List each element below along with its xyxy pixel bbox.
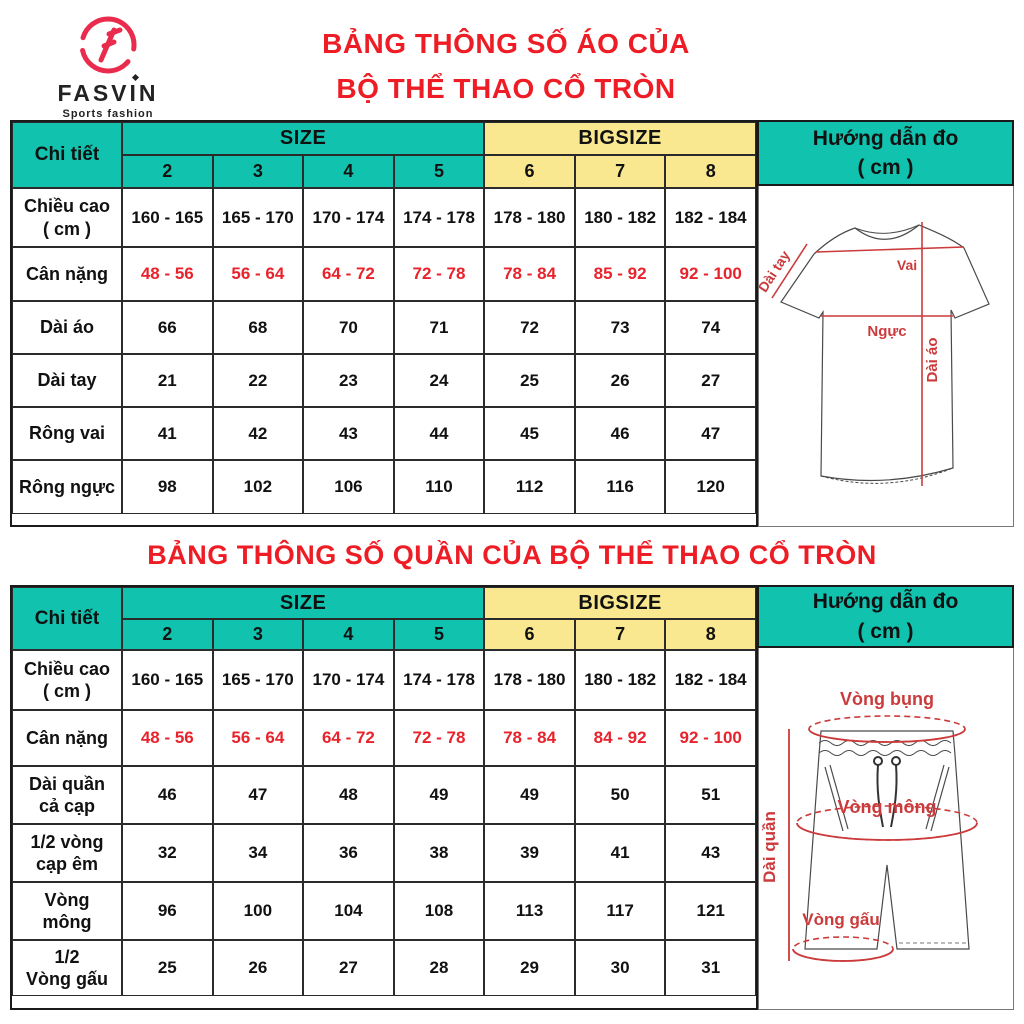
row-label-height: Chiều cao( cm ) <box>12 650 122 710</box>
table-cell: 112 <box>484 460 575 514</box>
table-cell: 41 <box>575 824 666 882</box>
table-cell: 25 <box>484 354 575 407</box>
table-cell: 73 <box>575 301 666 354</box>
table-cell: 56 - 64 <box>213 247 304 301</box>
nguc-label: Ngực <box>867 323 906 340</box>
table-cell: 42 <box>213 407 304 460</box>
shirt-measure-guide: Hướng dẫn đo ( cm ) Vai Ngực Dài áo <box>758 120 1014 527</box>
row-label-weight: Cân nặng <box>12 710 122 766</box>
table-cell: 117 <box>575 882 666 940</box>
table-cell: 108 <box>394 882 485 940</box>
table-cell: 22 <box>213 354 304 407</box>
table-cell: 178 - 180 <box>484 650 575 710</box>
pants-header-size-group: SIZE <box>122 587 484 619</box>
shirt-table-title: BẢNG THÔNG SỐ ÁO CỦA BỘ THỂ THAO CỔ TRÒN <box>0 22 1024 112</box>
bigsize-col-header: 8 <box>665 619 756 650</box>
table-cell: 38 <box>394 824 485 882</box>
table-cell: 165 - 170 <box>213 188 304 247</box>
table-cell: 24 <box>394 354 485 407</box>
shirt-diagram: Vai Ngực Dài áo Dài tay <box>758 186 1014 527</box>
table-cell: 21 <box>122 354 213 407</box>
table-cell: 160 - 165 <box>122 650 213 710</box>
table-cell: 178 - 180 <box>484 188 575 247</box>
table-cell: 28 <box>394 940 485 996</box>
table-cell: 56 - 64 <box>213 710 304 766</box>
shirt-size-table: Chi tiết SIZE BIGSIZE 2 3 4 5 6 7 8 Chiề… <box>10 120 758 527</box>
bigsize-col-header: 8 <box>665 155 756 188</box>
table-cell: 68 <box>213 301 304 354</box>
table-cell: 98 <box>122 460 213 514</box>
table-cell: 72 - 78 <box>394 710 485 766</box>
table-cell: 44 <box>394 407 485 460</box>
table-cell: 49 <box>484 766 575 824</box>
row-label-pants-length: Dài quầncả cạp <box>12 766 122 824</box>
table-cell: 92 - 100 <box>665 710 756 766</box>
table-cell: 48 - 56 <box>122 710 213 766</box>
table-cell: 174 - 178 <box>394 188 485 247</box>
size-col-header: 5 <box>394 619 485 650</box>
table-cell: 182 - 184 <box>665 650 756 710</box>
table-cell: 116 <box>575 460 666 514</box>
table-cell: 113 <box>484 882 575 940</box>
bigsize-col-header: 6 <box>484 619 575 650</box>
row-label-shirt-length: Dài áo <box>12 301 122 354</box>
table-cell: 30 <box>575 940 666 996</box>
table-cell: 121 <box>665 882 756 940</box>
table-cell: 170 - 174 <box>303 650 394 710</box>
table-cell: 96 <box>122 882 213 940</box>
table-cell: 45 <box>484 407 575 460</box>
table-cell: 29 <box>484 940 575 996</box>
row-label-sleeve-length: Dài tay <box>12 354 122 407</box>
bigsize-col-header: 7 <box>575 155 666 188</box>
dai-tay-label: Dài tay <box>759 247 793 294</box>
bigsize-col-header: 6 <box>484 155 575 188</box>
table-cell: 106 <box>303 460 394 514</box>
table-cell: 64 - 72 <box>303 710 394 766</box>
table-cell: 46 <box>122 766 213 824</box>
bigsize-col-header: 7 <box>575 619 666 650</box>
size-col-header: 3 <box>213 155 304 188</box>
table-cell: 50 <box>575 766 666 824</box>
row-label-weight: Cân nặng <box>12 247 122 301</box>
vai-label: Vai <box>897 257 917 273</box>
table-cell: 36 <box>303 824 394 882</box>
table-cell: 165 - 170 <box>213 650 304 710</box>
size-col-header: 2 <box>122 155 213 188</box>
shirt-title-line1: BẢNG THÔNG SỐ ÁO CỦA <box>0 22 1018 67</box>
size-col-header: 2 <box>122 619 213 650</box>
tshirt-diagram-icon: Vai Ngực Dài áo Dài tay <box>759 188 1013 525</box>
table-cell: 84 - 92 <box>575 710 666 766</box>
table-cell: 74 <box>665 301 756 354</box>
table-cell: 48 - 56 <box>122 247 213 301</box>
table-cell: 72 <box>484 301 575 354</box>
shirt-header-size-group: SIZE <box>122 122 484 155</box>
table-cell: 78 - 84 <box>484 247 575 301</box>
pants-size-section: Chi tiết SIZE BIGSIZE 2 3 4 5 6 7 8 Chiề… <box>10 585 1014 1010</box>
row-label-hip: Vòngmông <box>12 882 122 940</box>
table-cell: 26 <box>575 354 666 407</box>
table-cell: 39 <box>484 824 575 882</box>
table-cell: 27 <box>665 354 756 407</box>
table-cell: 180 - 182 <box>575 650 666 710</box>
size-col-header: 3 <box>213 619 304 650</box>
pants-table-title: BẢNG THÔNG SỐ QUẦN CỦA BỘ THỂ THAO CỔ TR… <box>0 540 1024 571</box>
table-cell: 104 <box>303 882 394 940</box>
shirt-size-section: Chi tiết SIZE BIGSIZE 2 3 4 5 6 7 8 Chiề… <box>10 120 1014 527</box>
table-cell: 78 - 84 <box>484 710 575 766</box>
table-cell: 26 <box>213 940 304 996</box>
shirt-header-chi-tiet: Chi tiết <box>12 122 122 188</box>
table-cell: 23 <box>303 354 394 407</box>
guide-header: Hướng dẫn đo ( cm ) <box>758 120 1014 186</box>
table-cell: 120 <box>665 460 756 514</box>
table-cell: 34 <box>213 824 304 882</box>
guide-header: Hướng dẫn đo ( cm ) <box>758 585 1014 648</box>
table-cell: 47 <box>665 407 756 460</box>
shirt-header-bigsize-group: BIGSIZE <box>484 122 756 155</box>
size-col-header: 5 <box>394 155 485 188</box>
table-cell: 43 <box>303 407 394 460</box>
table-cell: 31 <box>665 940 756 996</box>
table-cell: 100 <box>213 882 304 940</box>
table-cell: 72 - 78 <box>394 247 485 301</box>
pants-size-table: Chi tiết SIZE BIGSIZE 2 3 4 5 6 7 8 Chiề… <box>10 585 758 1010</box>
table-cell: 25 <box>122 940 213 996</box>
vong-bung-label: Vòng bụng <box>840 689 934 709</box>
table-cell: 174 - 178 <box>394 650 485 710</box>
table-cell: 102 <box>213 460 304 514</box>
row-label-height: Chiều cao( cm ) <box>12 188 122 247</box>
table-cell: 43 <box>665 824 756 882</box>
table-cell: 64 - 72 <box>303 247 394 301</box>
vong-gau-label: Vòng gấu <box>802 910 879 929</box>
pants-header-chi-tiet: Chi tiết <box>12 587 122 650</box>
row-label-half-hem: 1/2Vòng gấu <box>12 940 122 996</box>
row-label-chest-width: Rông ngực <box>12 460 122 514</box>
table-cell: 32 <box>122 824 213 882</box>
shirt-title-line2: BỘ THỂ THAO CỔ TRÒN <box>0 67 1018 112</box>
row-label-half-waist: 1/2 vòngcạp êm <box>12 824 122 882</box>
table-cell: 182 - 184 <box>665 188 756 247</box>
table-cell: 41 <box>122 407 213 460</box>
dai-quan-label: Dài quần <box>760 811 779 883</box>
table-cell: 49 <box>394 766 485 824</box>
table-cell: 110 <box>394 460 485 514</box>
table-cell: 180 - 182 <box>575 188 666 247</box>
dai-ao-label: Dài áo <box>924 337 941 382</box>
table-cell: 85 - 92 <box>575 247 666 301</box>
table-cell: 48 <box>303 766 394 824</box>
table-cell: 27 <box>303 940 394 996</box>
pants-diagram: Vòng bụng Vòng mông Dài quần Vòng gấu <box>758 648 1014 1010</box>
row-label-shoulder-width: Rông vai <box>12 407 122 460</box>
size-col-header: 4 <box>303 619 394 650</box>
shorts-diagram-icon: Vòng bụng Vòng mông Dài quần Vòng gấu <box>759 651 1013 1006</box>
pants-header-bigsize-group: BIGSIZE <box>484 587 756 619</box>
table-cell: 51 <box>665 766 756 824</box>
table-cell: 170 - 174 <box>303 188 394 247</box>
table-cell: 71 <box>394 301 485 354</box>
table-cell: 160 - 165 <box>122 188 213 247</box>
table-cell: 66 <box>122 301 213 354</box>
size-chart-page: FASVIN Sports fashion BẢNG THÔNG SỐ ÁO C… <box>0 0 1024 1024</box>
size-col-header: 4 <box>303 155 394 188</box>
pants-measure-guide: Hướng dẫn đo ( cm ) <box>758 585 1014 1010</box>
table-cell: 92 - 100 <box>665 247 756 301</box>
vong-mong-label: Vòng mông <box>838 797 937 817</box>
table-cell: 46 <box>575 407 666 460</box>
table-cell: 47 <box>213 766 304 824</box>
table-cell: 70 <box>303 301 394 354</box>
